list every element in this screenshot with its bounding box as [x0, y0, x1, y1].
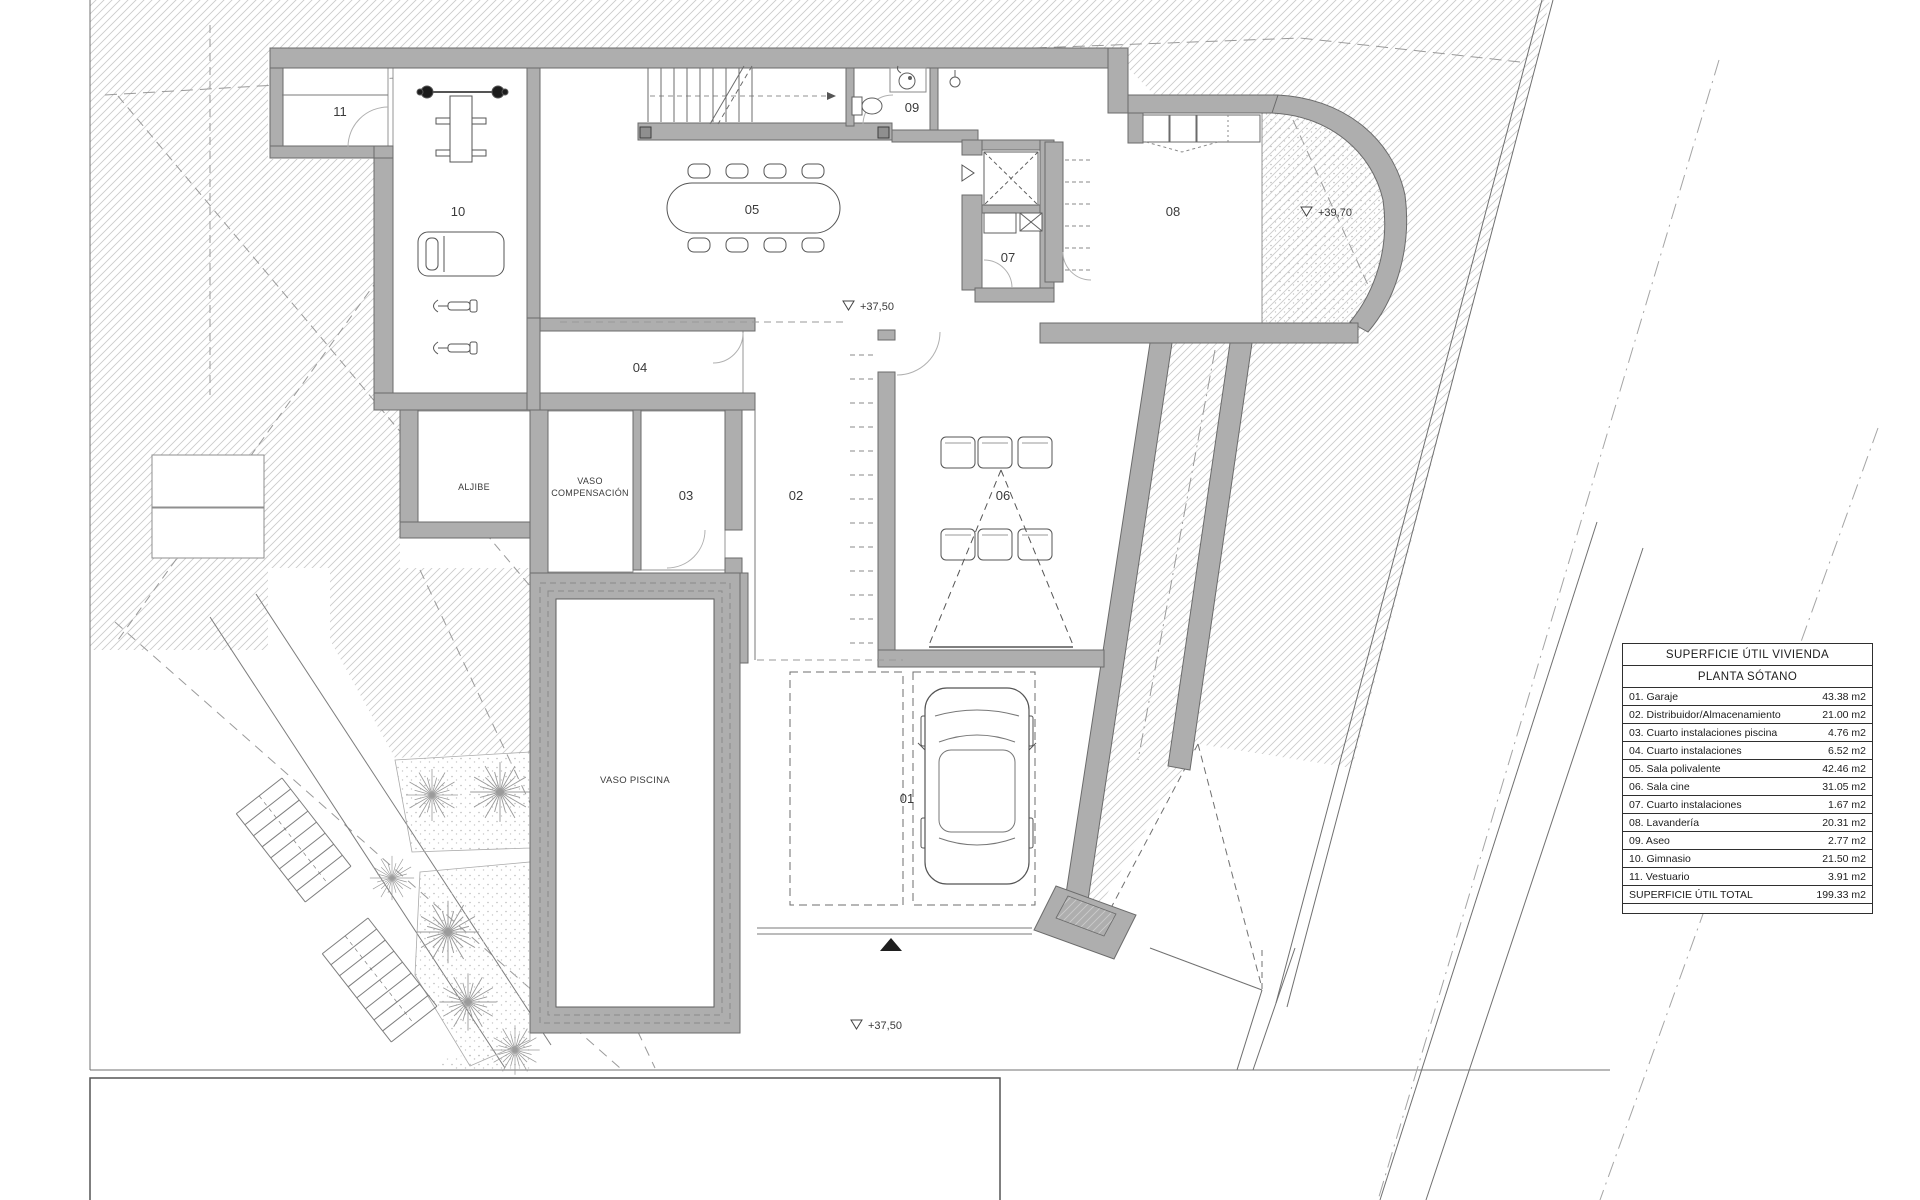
- row-label: 08. Lavandería: [1629, 817, 1699, 829]
- row-label: 11. Vestuario: [1629, 871, 1690, 883]
- label-vaso-piscina: VASO PISCINA: [600, 775, 670, 786]
- room-label-10: 10: [451, 204, 465, 219]
- area-table-subtitle-text: PLANTA SÓTANO: [1698, 671, 1797, 683]
- room-label-04: 04: [633, 360, 647, 375]
- room-label-02: 02: [789, 488, 803, 503]
- table-row: 04. Cuarto instalaciones 6.52 m2: [1622, 741, 1873, 760]
- level-main-label: +37,50: [860, 301, 894, 313]
- room-label-03: 03: [679, 488, 693, 503]
- row-label: 10. Gimnasio: [1629, 853, 1691, 865]
- floor-plan-canvas: +37,50 +39,70 +37,50 11 10 05 09 08 07 0…: [0, 0, 1920, 1200]
- row-label: 01. Garaje: [1629, 691, 1678, 703]
- row-label: 09. Aseo: [1629, 835, 1670, 847]
- table-row: 09. Aseo 2.77 m2: [1622, 831, 1873, 850]
- entrance-arrow: [880, 938, 902, 951]
- table-row: 06. Sala cine 31.05 m2: [1622, 777, 1873, 796]
- row-label: 06. Sala cine: [1629, 781, 1690, 793]
- toilet-icon: [852, 97, 882, 115]
- room-label-11: 11: [333, 104, 347, 119]
- row-value: 21.50 m2: [1822, 853, 1866, 865]
- row-value: 6.52 m2: [1828, 745, 1866, 757]
- row-label: 07. Cuarto instalaciones: [1629, 799, 1742, 811]
- room-label-07: 07: [1001, 250, 1015, 265]
- table-row: 02. Distribuidor/Almacenamiento 21.00 m2: [1622, 705, 1873, 724]
- row-label: 02. Distribuidor/Almacenamiento: [1629, 709, 1781, 721]
- area-table-title-text: SUPERFICIE ÚTIL VIVIENDA: [1666, 649, 1829, 661]
- row-value: 21.00 m2: [1822, 709, 1866, 721]
- level-marker-street: +37,50: [851, 1020, 902, 1032]
- row-value: 20.31 m2: [1822, 817, 1866, 829]
- area-table-footer: [1622, 903, 1873, 914]
- label-aljibe: ALJIBE: [458, 482, 490, 492]
- table-row: 07. Cuarto instalaciones 1.67 m2: [1622, 795, 1873, 814]
- label-vaso-2: COMPENSACIÓN: [551, 488, 629, 498]
- row-value: 4.76 m2: [1828, 727, 1866, 739]
- row-label: 03. Cuarto instalaciones piscina: [1629, 727, 1777, 739]
- room-label-05: 05: [745, 202, 759, 217]
- row-value: 2.77 m2: [1828, 835, 1866, 847]
- area-table-title: SUPERFICIE ÚTIL VIVIENDA: [1622, 643, 1873, 666]
- outdoor-stair-flight: [236, 778, 351, 902]
- area-table-subtitle: PLANTA SÓTANO: [1622, 665, 1873, 688]
- room-label-06: 06: [996, 488, 1010, 503]
- total-value: 199.33 m2: [1816, 889, 1866, 901]
- row-value: 42.46 m2: [1822, 763, 1866, 775]
- weight-bench-icon: [418, 232, 504, 276]
- car-icon: [918, 688, 1036, 884]
- level-terrace-label: +39,70: [1318, 207, 1352, 219]
- label-vaso-1: VASO: [577, 476, 603, 486]
- planter-plots: [152, 455, 264, 558]
- area-table: SUPERFICIE ÚTIL VIVIENDA PLANTA SÓTANO 0…: [1622, 644, 1873, 914]
- room-label-08: 08: [1166, 204, 1180, 219]
- row-label: 05. Sala polivalente: [1629, 763, 1721, 775]
- level-street-label: +37,50: [868, 1020, 902, 1032]
- row-value: 3.91 m2: [1828, 871, 1866, 883]
- table-row: 03. Cuarto instalaciones piscina 4.76 m2: [1622, 723, 1873, 742]
- total-label: SUPERFICIE ÚTIL TOTAL: [1629, 889, 1753, 901]
- table-row: 05. Sala polivalente 42.46 m2: [1622, 759, 1873, 778]
- table-row: 11. Vestuario 3.91 m2: [1622, 867, 1873, 886]
- row-value: 31.05 m2: [1822, 781, 1866, 793]
- area-table-total: SUPERFICIE ÚTIL TOTAL 199.33 m2: [1622, 885, 1873, 904]
- sink-icon: [890, 66, 926, 92]
- row-value: 43.38 m2: [1822, 691, 1866, 703]
- row-label: 04. Cuarto instalaciones: [1629, 745, 1742, 757]
- title-block: [90, 1078, 1000, 1200]
- plan-drawing: +37,50 +39,70 +37,50 11 10 05 09 08 07 0…: [0, 0, 1920, 1200]
- table-row: 01. Garaje 43.38 m2: [1622, 687, 1873, 706]
- area-table-rows: 01. Garaje 43.38 m2 02. Distribuidor/Alm…: [1622, 687, 1873, 886]
- table-row: 10. Gimnasio 21.50 m2: [1622, 849, 1873, 868]
- row-value: 1.67 m2: [1828, 799, 1866, 811]
- room-label-01: 01: [900, 791, 914, 806]
- room-label-09: 09: [905, 100, 919, 115]
- table-row: 08. Lavandería 20.31 m2: [1622, 813, 1873, 832]
